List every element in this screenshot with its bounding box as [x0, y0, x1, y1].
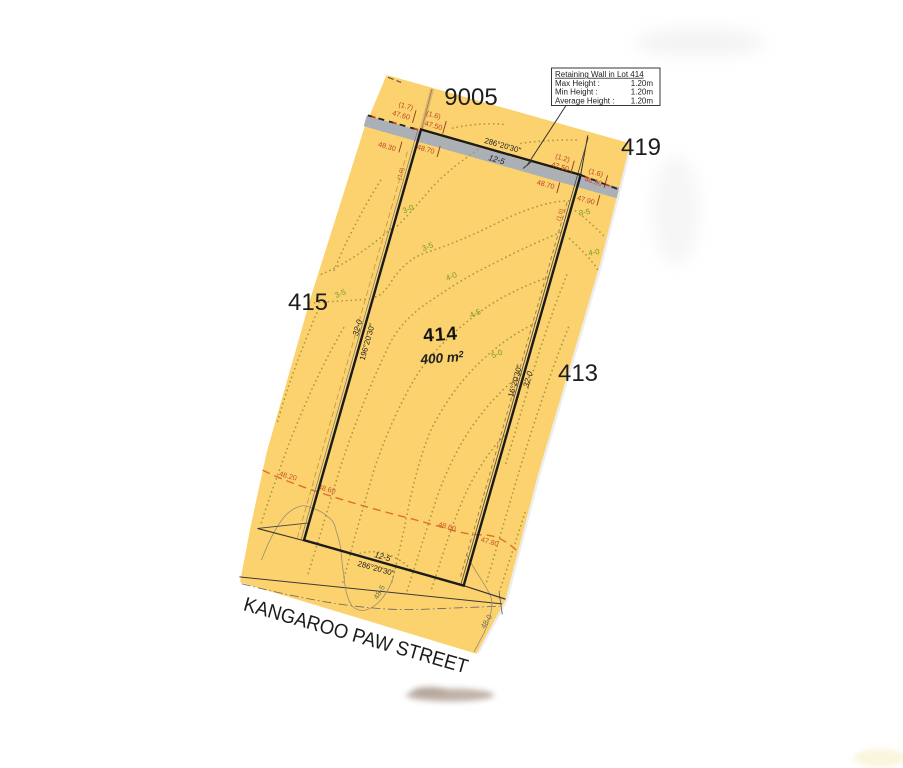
svg-text:1.20m: 1.20m	[631, 88, 654, 97]
svg-text:413: 413	[558, 360, 598, 387]
svg-text:Min Height :: Min Height :	[555, 88, 598, 97]
svg-text:415: 415	[288, 289, 328, 316]
svg-text:9005: 9005	[444, 84, 497, 111]
svg-text:1.20m: 1.20m	[631, 96, 654, 105]
svg-text:414: 414	[423, 323, 459, 346]
svg-text:3-5: 3-5	[578, 207, 591, 218]
svg-text:400 m2: 400 m2	[419, 349, 464, 367]
svg-text:1.20m: 1.20m	[631, 79, 654, 88]
svg-text:Retaining Wall in Lot 414: Retaining Wall in Lot 414	[555, 70, 644, 79]
svg-text:Average Height :: Average Height :	[555, 96, 614, 105]
svg-text:4-0: 4-0	[588, 247, 601, 258]
svg-text:419: 419	[621, 134, 661, 161]
svg-text:Max Height :: Max Height :	[555, 79, 600, 88]
